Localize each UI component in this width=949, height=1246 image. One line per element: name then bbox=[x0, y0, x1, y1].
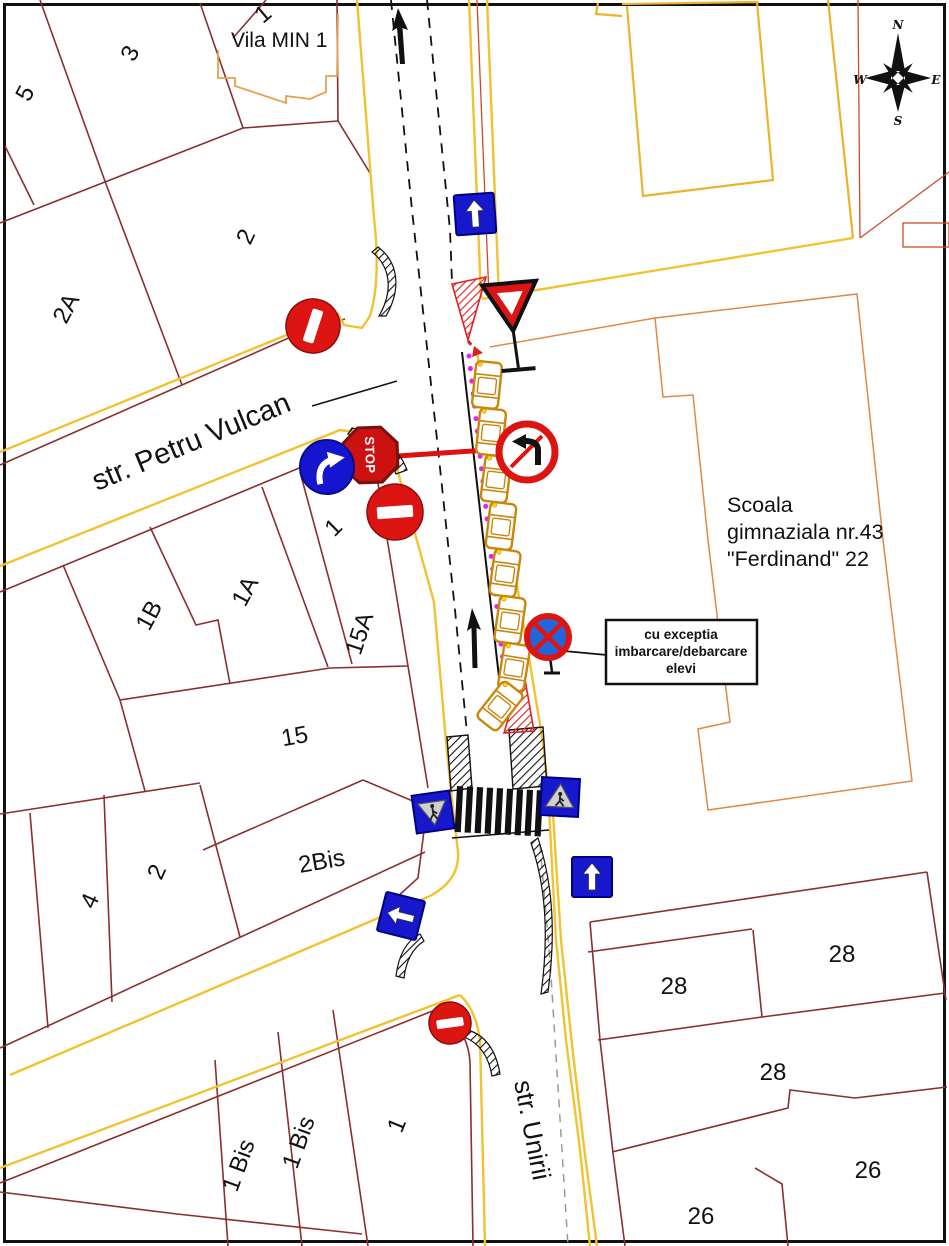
compass-w-label: W bbox=[853, 73, 868, 87]
pedestrian-crossing-sign bbox=[412, 791, 455, 834]
crosswalk bbox=[455, 786, 543, 836]
school-label-line3: "Ferdinand" 22 bbox=[727, 547, 869, 571]
compass-s-label: S bbox=[894, 114, 903, 128]
one-way-ahead-sign bbox=[454, 193, 497, 236]
school-label-line1: Scoala bbox=[727, 493, 793, 517]
school-label-line2: gimnaziala nr.43 bbox=[727, 520, 884, 544]
note-line-1: cu exceptia bbox=[644, 627, 718, 642]
parcel-label: 26 bbox=[855, 1157, 882, 1184]
car-icon bbox=[472, 361, 503, 409]
no-entry-bar-icon bbox=[377, 505, 414, 519]
parcel-label: 26 bbox=[688, 1203, 715, 1230]
one-way-left-sign bbox=[377, 892, 425, 940]
parcel-label: 28 bbox=[760, 1059, 787, 1086]
traffic-plan-map: STOP bbox=[0, 0, 949, 1246]
car-icon bbox=[489, 548, 521, 597]
note-box: cu exceptia imbarcare/debarcare elevi bbox=[606, 620, 757, 684]
parcel-label: 28 bbox=[829, 941, 856, 968]
one-way-ahead-sign bbox=[572, 857, 612, 897]
no-left-turn-sign bbox=[499, 424, 555, 480]
refuge-island bbox=[447, 735, 472, 791]
pedestrian-crossing-sign bbox=[540, 777, 580, 817]
compass-e-label: E bbox=[930, 73, 941, 87]
car-icon bbox=[494, 595, 526, 644]
parcel-label: 15 bbox=[279, 721, 310, 752]
map-page: STOP bbox=[0, 0, 949, 1246]
label-vila: Vila MIN 1 bbox=[231, 29, 327, 52]
note-line-3: elevi bbox=[666, 661, 696, 676]
stop-sign-label: STOP bbox=[362, 436, 378, 474]
parcel-label: 28 bbox=[661, 973, 688, 1000]
note-line-2: imbarcare/debarcare bbox=[615, 644, 748, 659]
compass-n-label: N bbox=[892, 18, 905, 32]
car-icon bbox=[485, 502, 516, 551]
